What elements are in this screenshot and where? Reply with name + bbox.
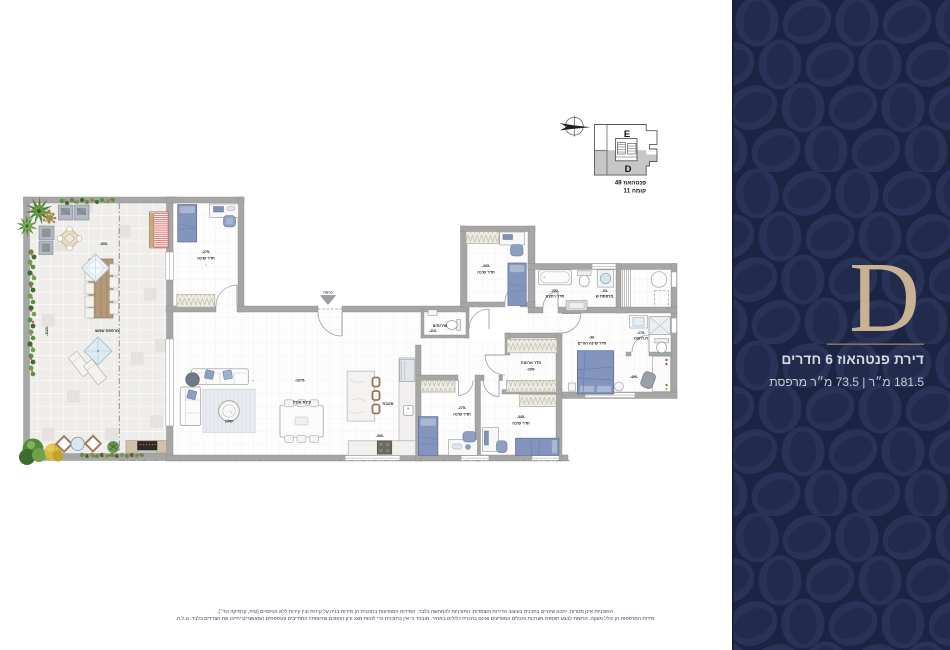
svg-text:-275-: -275- — [458, 406, 467, 410]
svg-text:שירותים: שירותים — [433, 323, 449, 328]
svg-text:-265-: -265- — [482, 264, 491, 268]
svg-text:-600-: -600- — [100, 242, 109, 246]
svg-text:חדר ארונות: חדר ארונות — [521, 360, 542, 365]
svg-text:D: D — [849, 241, 920, 354]
svg-text:-300-: -300- — [376, 434, 385, 438]
svg-text:D: D — [625, 164, 632, 175]
svg-text:סלון: סלון — [225, 419, 233, 424]
svg-text:↕: ↕ — [205, 263, 207, 267]
svg-text:-63-: -63- — [602, 289, 609, 293]
svg-text:פנטהאוז 49: פנטהאוז 49 — [615, 181, 646, 187]
svg-text:-490-: -490- — [630, 375, 639, 379]
svg-text:מרפסת ש.: מרפסת ש. — [596, 294, 615, 299]
svg-text:-252-: -252- — [551, 289, 560, 293]
svg-text:-1120-: -1120- — [45, 325, 49, 336]
svg-text:חדר שינה: חדר שינה — [512, 421, 530, 426]
svg-text:E: E — [624, 129, 630, 140]
svg-text:חדר שינה: חדר שינה — [197, 256, 215, 261]
svg-text:חדר שינה: חדר שינה — [477, 270, 495, 275]
svg-text:-1075-: -1075- — [295, 379, 306, 383]
svg-text:מטבח: מטבח — [382, 401, 393, 406]
svg-text:-110-: -110- — [429, 329, 438, 333]
svg-text:מרפסת שמש: מרפסת שמש — [95, 328, 119, 333]
svg-text:כניסה: כניסה — [323, 291, 332, 295]
svg-text:ח.רחצה: ח.רחצה — [634, 336, 648, 341]
svg-text:-205-: -205- — [527, 368, 536, 372]
svg-text:חדר רחצה: חדר רחצה — [546, 294, 565, 299]
svg-text:-275-: -275- — [202, 250, 211, 254]
svg-text:חדר שינה: חדר שינה — [453, 412, 471, 417]
svg-text:פינת אוכל: פינת אוכל — [293, 400, 311, 405]
svg-text:חדר שינה הורים: חדר שינה הורים — [578, 341, 607, 346]
svg-text:-345-: -345- — [517, 415, 526, 419]
svg-text:↔: ↔ — [251, 379, 255, 383]
svg-text:-175-: -175- — [637, 331, 646, 335]
svg-text:-30-: -30- — [589, 336, 596, 340]
svg-text:קומה 11: קומה 11 — [624, 189, 647, 195]
